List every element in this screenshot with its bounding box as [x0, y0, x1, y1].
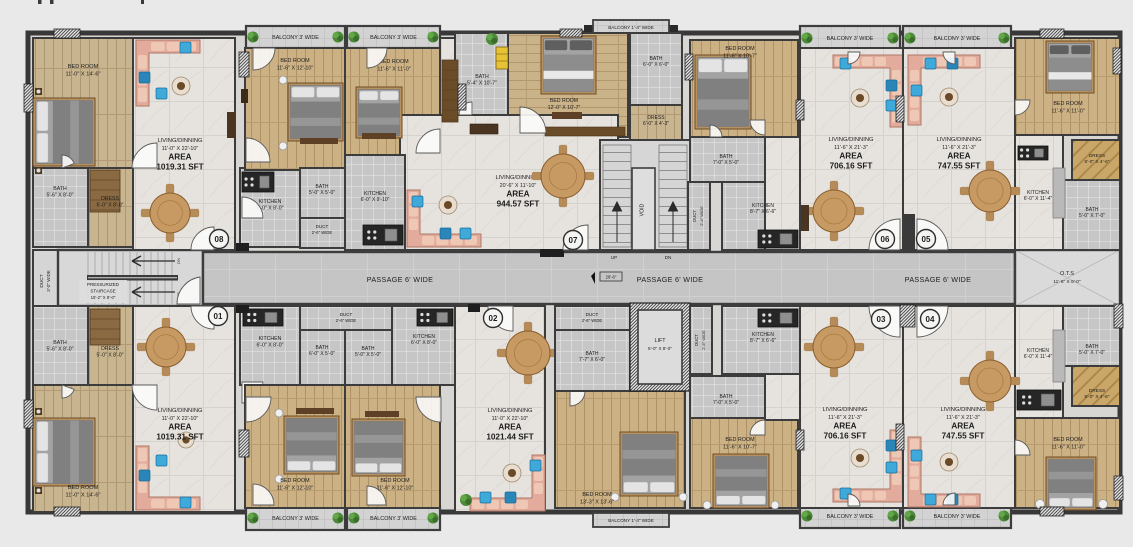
svg-text:12'-0" X 10'-7": 12'-0" X 10'-7" [548, 105, 581, 111]
svg-text:5'-0" X 8'-0": 5'-0" X 8'-0" [96, 353, 123, 359]
svg-text:BATH: BATH [475, 74, 489, 80]
svg-text:BATH: BATH [650, 56, 663, 62]
svg-text:5'-0" X 4'-6": 5'-0" X 4'-6" [1085, 159, 1110, 165]
svg-text:BALCONY 3' WIDE: BALCONY 3' WIDE [934, 514, 981, 520]
svg-text:BED ROOM: BED ROOM [582, 492, 612, 498]
svg-text:7'-0" X 5'-0": 7'-0" X 5'-0" [713, 160, 739, 166]
svg-text:BALCONY 1'-4" WIDE: BALCONY 1'-4" WIDE [608, 518, 654, 523]
svg-text:DUCT: DUCT [340, 312, 353, 317]
svg-text:PASSAGE 6' WIDE: PASSAGE 6' WIDE [637, 275, 703, 284]
svg-text:05: 05 [922, 235, 931, 244]
svg-text:08: 08 [215, 235, 224, 244]
svg-text:02: 02 [489, 314, 498, 323]
svg-text:LIVING/DINNING: LIVING/DINNING [940, 407, 986, 413]
svg-text:DUCT: DUCT [39, 274, 45, 287]
svg-text:BATH: BATH [316, 345, 329, 351]
svg-text:11'-6" X 6'-0": 11'-6" X 6'-0" [1053, 279, 1081, 285]
svg-text:AREA: AREA [168, 423, 191, 432]
svg-text:11'-6" X 12'-10": 11'-6" X 12'-10" [277, 66, 314, 72]
svg-text:2'-6" WIDE: 2'-6" WIDE [582, 318, 603, 323]
svg-text:5'-0" X 5'-0": 5'-0" X 5'-0" [355, 352, 381, 358]
svg-text:PASSAGE 6' WIDE: PASSAGE 6' WIDE [905, 275, 971, 284]
svg-text:8'-7" X 6'-6": 8'-7" X 6'-6" [750, 338, 776, 344]
svg-text:5'-0" X 5'-0": 5'-0" X 5'-0" [309, 190, 335, 196]
svg-text:AREA: AREA [839, 152, 862, 161]
svg-text:7'-0" X 5'-0": 7'-0" X 5'-0" [713, 400, 739, 406]
svg-text:BED ROOM: BED ROOM [1053, 101, 1083, 107]
svg-text:DRESS: DRESS [101, 346, 119, 352]
svg-text:6'-0" X 8'-0": 6'-0" X 8'-0" [411, 340, 437, 346]
svg-text:5'-0" X 7'-0": 5'-0" X 7'-0" [1079, 350, 1105, 356]
svg-text:LIVING/DINNING: LIVING/DINNING [828, 137, 874, 143]
svg-text:1021.44 SFT: 1021.44 SFT [486, 433, 533, 442]
svg-text:BED ROOM: BED ROOM [379, 59, 409, 65]
svg-text:LIVING/DINNING: LIVING/DINNING [157, 408, 203, 414]
svg-text:5'-6" X 8'-0": 5'-6" X 8'-0" [46, 347, 73, 353]
svg-text:11'-0" X 14'-6": 11'-0" X 14'-6" [66, 72, 101, 78]
svg-text:2'-6" WIDE: 2'-6" WIDE [336, 318, 357, 323]
svg-text:BATH: BATH [1086, 344, 1099, 350]
svg-text:6'-0" X 8'-0": 6'-0" X 8'-0" [256, 343, 283, 349]
svg-text:BED ROOM: BED ROOM [68, 485, 99, 491]
svg-text:DUCT: DUCT [586, 312, 599, 317]
svg-text:UP: UP [611, 255, 617, 260]
svg-text:944.57 SFT: 944.57 SFT [497, 200, 540, 209]
svg-text:747.55 SFT: 747.55 SFT [942, 432, 985, 441]
svg-text:DN: DN [176, 258, 181, 264]
svg-text:BED ROOM: BED ROOM [725, 437, 755, 443]
svg-text:BATH: BATH [586, 351, 599, 357]
svg-text:BED ROOM: BED ROOM [68, 64, 99, 70]
svg-text:BALCONY 3' WIDE: BALCONY 3' WIDE [370, 35, 417, 41]
svg-text:5'-0" X 8'-0": 5'-0" X 8'-0" [96, 203, 123, 209]
svg-text:5'-0" X 8'-0": 5'-0" X 8'-0" [648, 346, 672, 351]
svg-text:7'-7" X 6'-0": 7'-7" X 6'-0" [579, 357, 605, 363]
svg-text:11'-0" X 22'-10": 11'-0" X 22'-10" [492, 416, 529, 422]
svg-text:LIVING/DINNING: LIVING/DINNING [822, 407, 868, 413]
svg-text:KITCHEN: KITCHEN [752, 332, 774, 338]
svg-text:11'-6" X 21'-3": 11'-6" X 21'-3" [942, 145, 976, 151]
svg-text:LIVING/DINNING: LIVING/DINNING [936, 137, 982, 143]
svg-text:6'-0" X 6'-0": 6'-0" X 6'-0" [643, 62, 669, 68]
svg-text:DRESS: DRESS [1089, 388, 1106, 394]
svg-text:KITCHEN: KITCHEN [413, 334, 435, 340]
svg-text:DRESS: DRESS [1089, 153, 1106, 159]
svg-text:BALCONY 1'-4" WIDE: BALCONY 1'-4" WIDE [608, 25, 654, 30]
svg-text:STAIRCASE: STAIRCASE [90, 289, 115, 294]
svg-text:DUCT: DUCT [694, 334, 699, 346]
svg-text:747.55 SFT: 747.55 SFT [938, 162, 981, 171]
svg-text:PRESSURIZED: PRESSURIZED [87, 282, 120, 287]
svg-text:11'-6" X 11'-0": 11'-6" X 11'-0" [1051, 109, 1084, 115]
svg-text:BALCONY 3' WIDE: BALCONY 3' WIDE [827, 36, 874, 42]
svg-text:15'-2" X 8'-0": 15'-2" X 8'-0" [91, 295, 116, 300]
svg-text:6'-0" X 4'-3": 6'-0" X 4'-3" [643, 121, 669, 127]
svg-text:BED ROOM: BED ROOM [280, 478, 310, 484]
svg-text:KITCHEN: KITCHEN [752, 203, 774, 209]
svg-text:6'-0" X 9'-10": 6'-0" X 9'-10" [361, 197, 390, 203]
svg-text:20'-6" X 11'-10": 20'-6" X 11'-10" [500, 183, 537, 189]
svg-text:6'-0" X 11'-4": 6'-0" X 11'-4" [1024, 354, 1053, 360]
svg-text:BATH: BATH [362, 346, 375, 352]
svg-text:LIVING/DINNING: LIVING/DINNING [487, 408, 533, 414]
svg-text:LIFT: LIFT [654, 338, 666, 344]
svg-text:8'-7" X 6'-6": 8'-7" X 6'-6" [750, 209, 776, 215]
svg-text:BED ROOM: BED ROOM [380, 478, 410, 484]
svg-text:5'-0" X 4'-6": 5'-0" X 4'-6" [1085, 394, 1110, 400]
svg-text:DUCT: DUCT [692, 210, 697, 222]
svg-text:AREA: AREA [506, 190, 529, 199]
svg-text:BATH: BATH [53, 186, 67, 192]
svg-text:BATH: BATH [720, 394, 733, 400]
svg-text:04: 04 [926, 315, 935, 324]
svg-text:07: 07 [569, 236, 578, 245]
svg-text:6'-0" X 5'-0": 6'-0" X 5'-0" [309, 351, 335, 357]
svg-text:1019.31 SFT: 1019.31 SFT [156, 163, 203, 172]
svg-text:2'-4" WIDE: 2'-4" WIDE [699, 206, 704, 226]
svg-text:11'-6" X 12'-10": 11'-6" X 12'-10" [377, 486, 414, 492]
svg-text:BATH: BATH [53, 340, 67, 346]
svg-text:706.16 SFT: 706.16 SFT [824, 432, 867, 441]
svg-text:AREA: AREA [951, 422, 974, 431]
svg-text:BATH: BATH [720, 154, 733, 160]
svg-text:AREA: AREA [947, 152, 970, 161]
svg-text:5'-4" X 10'-7": 5'-4" X 10'-7" [467, 81, 497, 87]
svg-text:11'-6" X 21'-3": 11'-6" X 21'-3" [946, 415, 980, 421]
svg-text:KITCHEN: KITCHEN [1027, 348, 1049, 354]
svg-text:5'-0" X 7'-0": 5'-0" X 7'-0" [1079, 213, 1105, 219]
svg-text:DRESS: DRESS [101, 196, 119, 202]
svg-text:11'-0" X 14'-6": 11'-0" X 14'-6" [66, 493, 101, 499]
svg-text:5'-6" X 8'-0": 5'-6" X 8'-0" [46, 193, 73, 199]
svg-text:11'-6" X 11'-0": 11'-6" X 11'-0" [377, 67, 410, 73]
svg-text:BALCONY 3' WIDE: BALCONY 3' WIDE [370, 516, 417, 522]
svg-text:BALCONY 3' WIDE: BALCONY 3' WIDE [272, 35, 319, 41]
svg-text:11'-0" X 22'-10": 11'-0" X 22'-10" [162, 146, 199, 152]
svg-text:11'-0" X 22'-10": 11'-0" X 22'-10" [162, 416, 199, 422]
svg-text:KITCHEN: KITCHEN [1027, 190, 1049, 196]
svg-text:BED ROOM: BED ROOM [280, 58, 310, 64]
svg-text:BATH: BATH [1086, 207, 1099, 213]
svg-text:VOID: VOID [640, 203, 646, 216]
svg-text:2'-6" WIDE: 2'-6" WIDE [701, 330, 706, 350]
svg-text:AREA: AREA [168, 153, 191, 162]
svg-text:DN: DN [665, 255, 672, 260]
svg-text:2'-6" WIDE: 2'-6" WIDE [312, 230, 333, 235]
svg-text:706.16 SFT: 706.16 SFT [830, 162, 873, 171]
svg-text:LIVING/DINNING: LIVING/DINNING [157, 138, 203, 144]
svg-text:AREA: AREA [833, 422, 856, 431]
svg-text:13'-3" X 13'-6": 13'-3" X 13'-6" [580, 500, 614, 506]
svg-text:AREA: AREA [498, 423, 521, 432]
svg-text:DRESS: DRESS [647, 115, 665, 121]
svg-text:DUCT: DUCT [316, 224, 329, 229]
svg-text:KITCHEN: KITCHEN [364, 191, 386, 197]
svg-text:11'-6" X 10'-7": 11'-6" X 10'-7" [723, 445, 757, 451]
svg-text:03: 03 [877, 315, 886, 324]
svg-text:BED ROOM: BED ROOM [550, 98, 578, 104]
svg-text:KITCHEN: KITCHEN [259, 199, 282, 205]
svg-text:06: 06 [881, 235, 890, 244]
svg-text:11'-6" X 12'-10": 11'-6" X 12'-10" [277, 486, 314, 492]
svg-text:BED ROOM: BED ROOM [1053, 437, 1083, 443]
svg-text:01: 01 [214, 312, 223, 321]
svg-text:6'-0" X 11'-4": 6'-0" X 11'-4" [1024, 196, 1053, 202]
svg-text:11'-6" X 21'-3": 11'-6" X 21'-3" [828, 415, 862, 421]
svg-text:11'-6" X 11'-0": 11'-6" X 11'-0" [1051, 445, 1084, 451]
svg-text:11'-6" X 21'-3": 11'-6" X 21'-3" [834, 145, 868, 151]
svg-text:PASSAGE 6' WIDE: PASSAGE 6' WIDE [367, 275, 433, 284]
svg-text:1019.31 SFT: 1019.31 SFT [156, 433, 203, 442]
svg-text:KITCHEN: KITCHEN [259, 336, 282, 342]
svg-text:11'-6" X 10'-7": 11'-6" X 10'-7" [723, 54, 757, 60]
svg-text:BALCONY 3' WIDE: BALCONY 3' WIDE [934, 36, 981, 42]
svg-text:BATH: BATH [316, 184, 329, 190]
svg-text:O.T.S: O.T.S [1060, 271, 1074, 277]
svg-text:3'-0" WIDE: 3'-0" WIDE [46, 270, 51, 291]
svg-text:BALCONY 3' WIDE: BALCONY 3' WIDE [272, 516, 319, 522]
svg-text:28'-6": 28'-6" [606, 275, 617, 280]
svg-text:BED ROOM: BED ROOM [725, 46, 755, 52]
svg-text:BALCONY 3' WIDE: BALCONY 3' WIDE [827, 514, 874, 520]
